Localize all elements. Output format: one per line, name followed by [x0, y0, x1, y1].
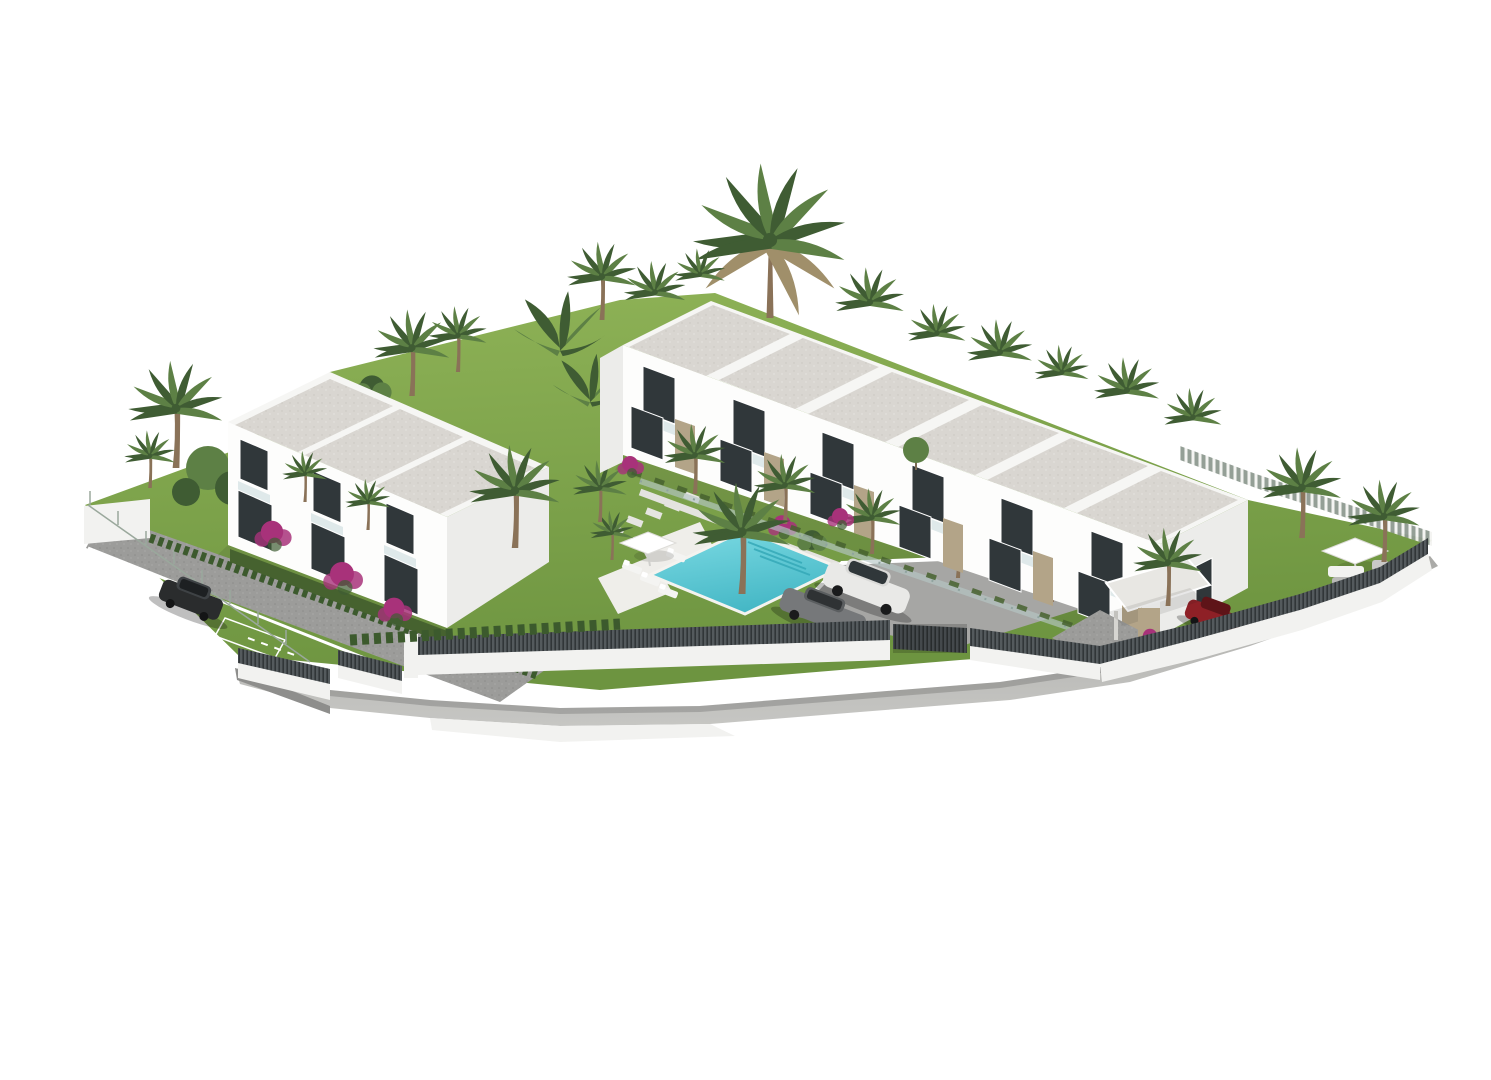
palm-tree: [835, 267, 904, 320]
stone-clad-pier: [943, 518, 963, 573]
palm-tree: [967, 319, 1033, 369]
palm-tree: [1164, 388, 1222, 433]
stone-clad-pier: [1033, 551, 1053, 606]
right-building-end-wall-left: [600, 345, 623, 473]
rendering-canvas: 3D architectural rendering of a white mo…: [0, 0, 1491, 1080]
palm-tree: [908, 304, 966, 349]
development-rendering: 3D architectural rendering of a white mo…: [0, 0, 1491, 1080]
palm-tree: [1034, 345, 1089, 387]
left-retaining-wall: [84, 499, 150, 544]
gate-shade: [893, 624, 967, 653]
palm-tree: [1094, 357, 1160, 407]
